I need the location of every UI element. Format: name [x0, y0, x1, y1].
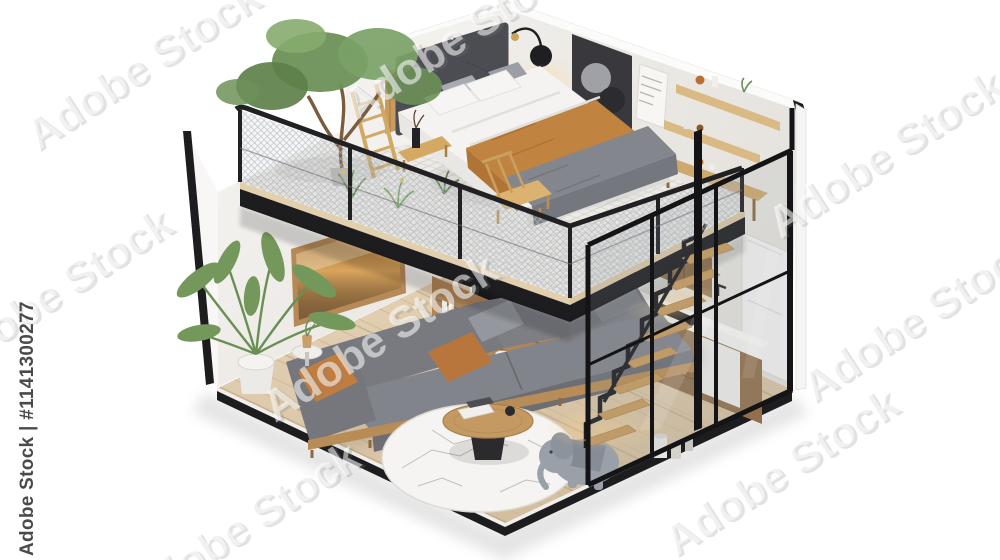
svg-text:Adobe Stock | #1141300277: Adobe Stock | #1141300277 — [17, 301, 38, 556]
stock-photo-canvas: Adobe Stock Adobe Stock Adobe Stock Adob… — [0, 0, 1000, 560]
watermark-id-label: Adobe Stock | #1141300277 Adobe Stock | … — [17, 301, 42, 556]
right-outer-band — [796, 104, 806, 390]
watermark-tile: Adobe Stock Adobe Stock — [792, 223, 1000, 414]
svg-text:Adobe Stock: Adobe Stock — [116, 432, 369, 560]
wall-poster — [636, 64, 668, 128]
lamp-shade-icon — [530, 45, 552, 67]
cup-icon — [505, 406, 515, 416]
isometric-loft-render: Adobe Stock Adobe Stock Adobe Stock Adob… — [0, 0, 1000, 560]
watermark-tile: Adobe Stock Adobe Stock — [116, 431, 372, 560]
corner-post — [694, 129, 702, 431]
black-vase-icon — [412, 128, 420, 148]
vase-icon — [302, 334, 312, 348]
